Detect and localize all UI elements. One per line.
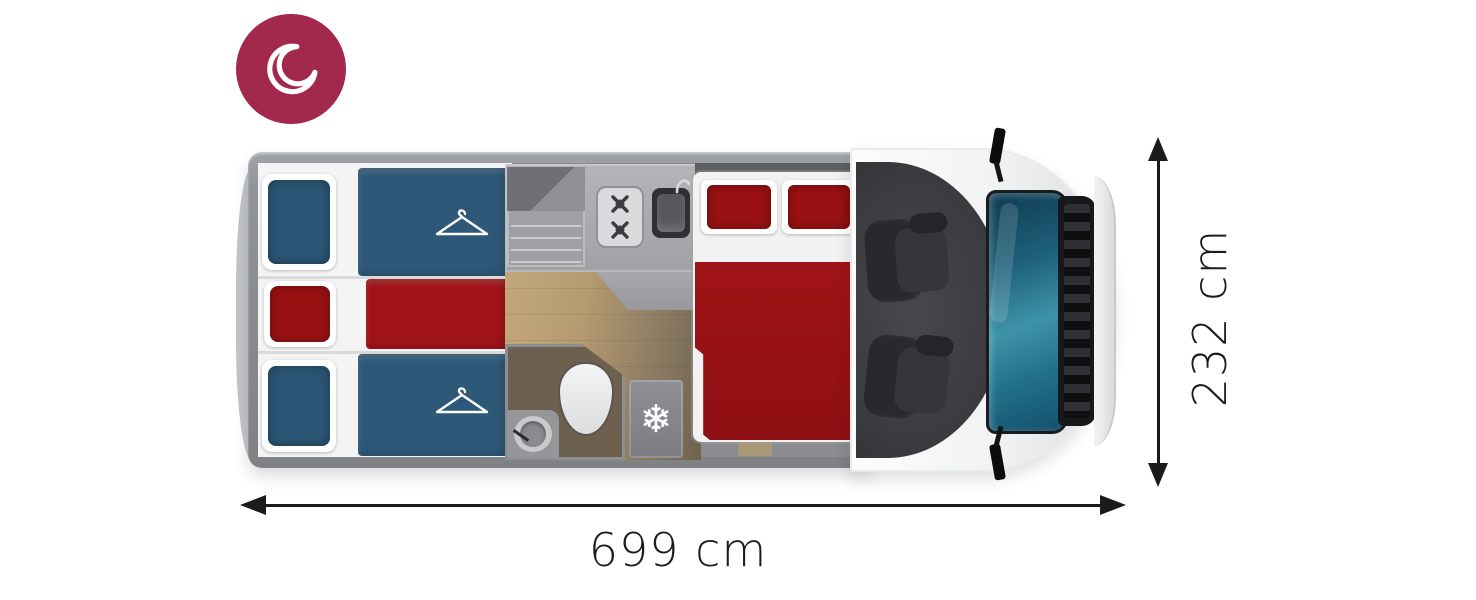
- kitchen-sink: [652, 188, 690, 238]
- double-bed-red: [695, 262, 859, 440]
- pillow-red: [788, 185, 850, 229]
- pillow-blue: [268, 180, 330, 264]
- kitchen-cabinet: [507, 167, 585, 267]
- pillow-red: [707, 185, 771, 229]
- arrow-up-icon: [1148, 137, 1168, 161]
- washbasin-bowl: [520, 421, 546, 447]
- windshield: [986, 190, 1068, 434]
- floorplan-diagram: ❄ 699 cm 232 cm: [0, 0, 1476, 600]
- width-dimension-line: [1157, 155, 1160, 469]
- snowflake-icon: ❄: [640, 400, 672, 438]
- front-bumper: [1094, 176, 1116, 446]
- arrow-down-icon: [1148, 463, 1168, 487]
- hanger-icon: [432, 206, 492, 240]
- refrigerator: ❄: [629, 380, 683, 458]
- stove-burners-icon: [598, 188, 642, 246]
- side-mirror-bottom: [982, 424, 1018, 480]
- side-mirror-top: [982, 128, 1018, 184]
- mirror-arm: [994, 161, 1004, 183]
- swivel-seat-right: [861, 327, 970, 433]
- pillow-blue: [268, 366, 330, 446]
- swivel-seat-left: [863, 209, 969, 312]
- single-bed-red-middle: [366, 279, 512, 349]
- length-label: 699 cm: [558, 522, 798, 578]
- stove: [596, 186, 644, 248]
- moon-icon: [258, 36, 324, 102]
- night-mode-badge: [236, 14, 346, 124]
- grille-slats: [1064, 204, 1090, 418]
- seat-armrest: [909, 212, 948, 235]
- cabinet-worktop: [507, 167, 585, 211]
- cabinet-shelves: [511, 215, 581, 263]
- arrow-left-icon: [240, 495, 266, 515]
- front-grille: [1058, 196, 1096, 426]
- mirror-head: [989, 443, 1006, 480]
- glass-reflection: [989, 202, 1019, 323]
- length-dimension-line: [256, 504, 1108, 507]
- hanger-icon: [432, 384, 492, 418]
- pillow-red: [270, 286, 330, 342]
- sink-basin: [657, 194, 685, 232]
- seat-cushion: [894, 226, 950, 293]
- width-label: 232 cm: [1182, 218, 1238, 418]
- arrow-right-icon: [1100, 495, 1126, 515]
- mirror-head: [989, 127, 1006, 164]
- mirror-arm: [994, 426, 1004, 448]
- faucet-icon: [674, 174, 694, 194]
